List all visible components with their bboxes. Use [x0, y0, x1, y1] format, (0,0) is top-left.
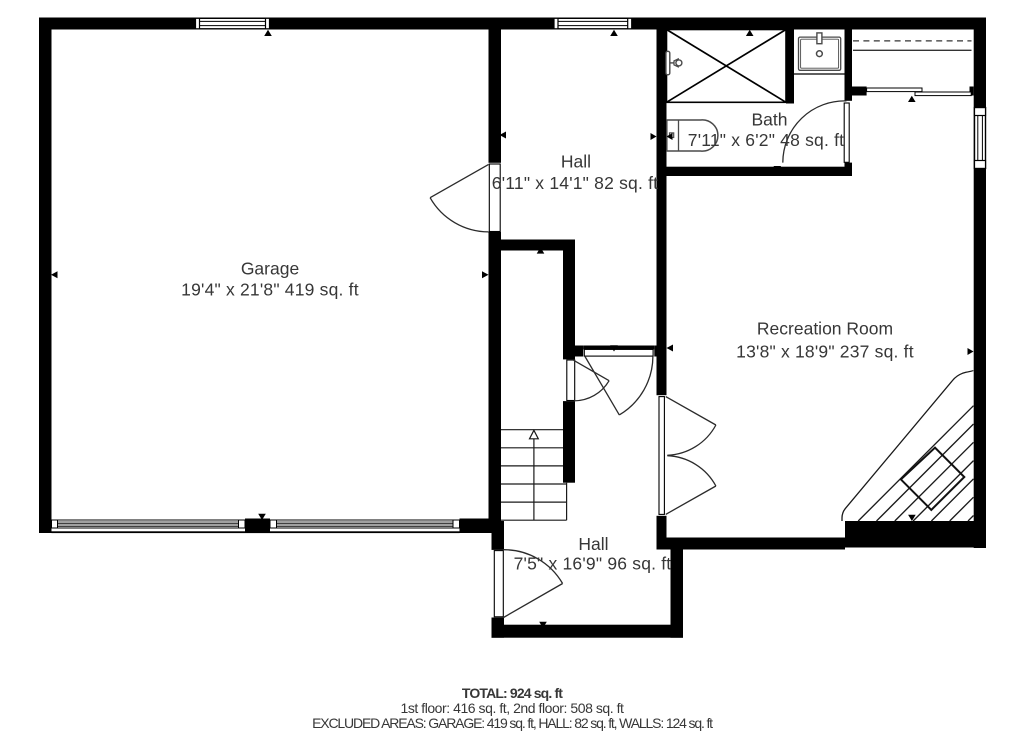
svg-text:Garage: Garage — [241, 259, 299, 279]
svg-text:7'5" x 16'9" 96 sq. ft: 7'5" x 16'9" 96 sq. ft — [514, 554, 672, 574]
svg-text:13'8" x 18'9" 237 sq. ft: 13'8" x 18'9" 237 sq. ft — [736, 342, 914, 362]
svg-text:Bath: Bath — [752, 109, 788, 129]
svg-text:1st floor: 416 sq. ft, 2nd flo: 1st floor: 416 sq. ft, 2nd floor: 508 sq… — [400, 700, 624, 716]
svg-text:Hall: Hall — [561, 152, 591, 172]
svg-text:19'4" x 21'8" 419 sq. ft: 19'4" x 21'8" 419 sq. ft — [181, 280, 359, 300]
svg-text:TOTAL: 924 sq. ft: TOTAL: 924 sq. ft — [462, 685, 563, 701]
svg-text:6'11" x 14'1" 82 sq. ft: 6'11" x 14'1" 82 sq. ft — [492, 173, 658, 193]
svg-text:EXCLUDED AREAS: GARAGE: 419 sq: EXCLUDED AREAS: GARAGE: 419 sq. ft, HALL… — [312, 715, 713, 731]
svg-text:Recreation Room: Recreation Room — [757, 319, 893, 339]
svg-text:Hall: Hall — [578, 534, 608, 554]
svg-text:7'11" x 6'2" 48 sq. ft: 7'11" x 6'2" 48 sq. ft — [688, 130, 844, 150]
